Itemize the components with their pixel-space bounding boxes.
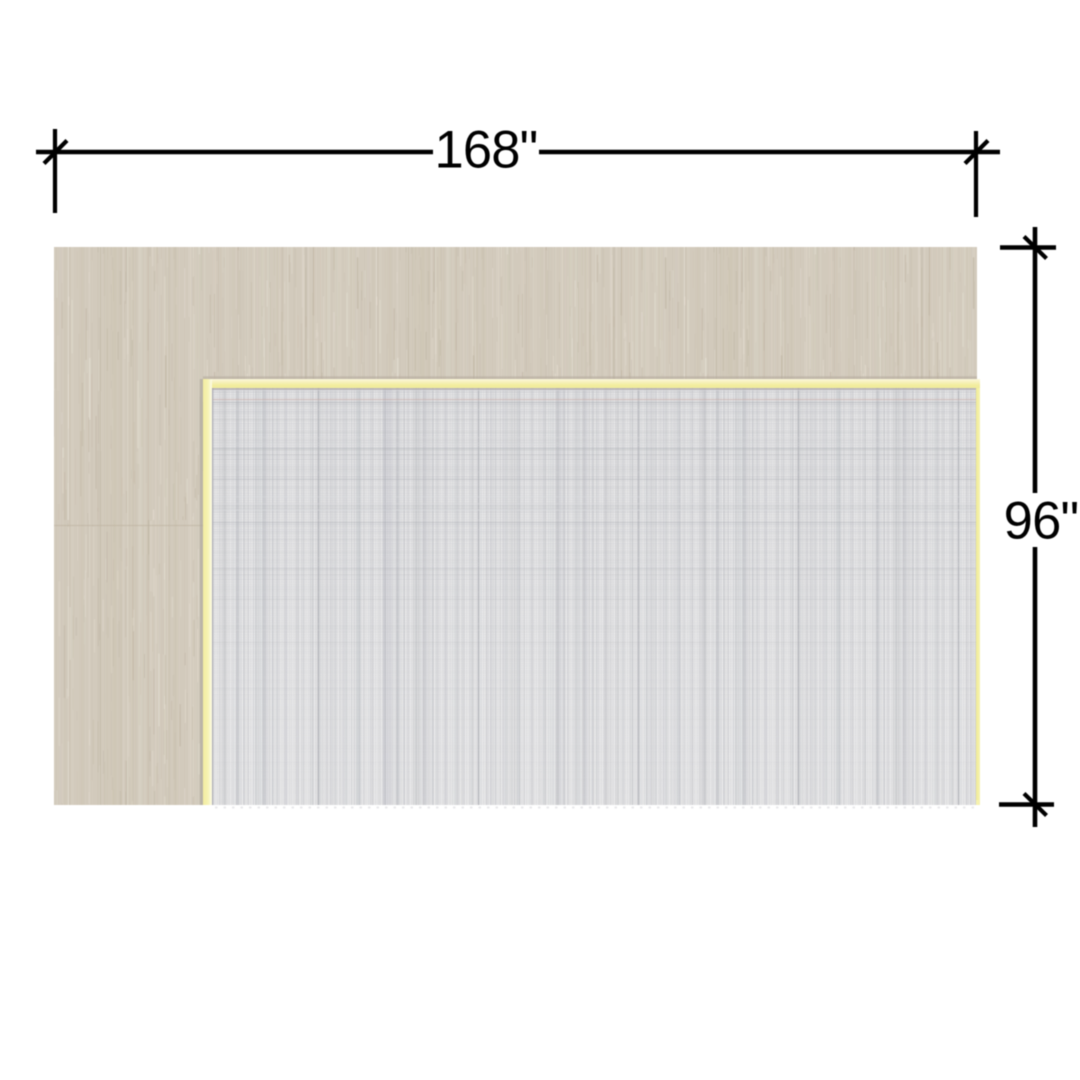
svg-text:96": 96" [1004,492,1079,551]
svg-text:168": 168" [434,121,537,180]
